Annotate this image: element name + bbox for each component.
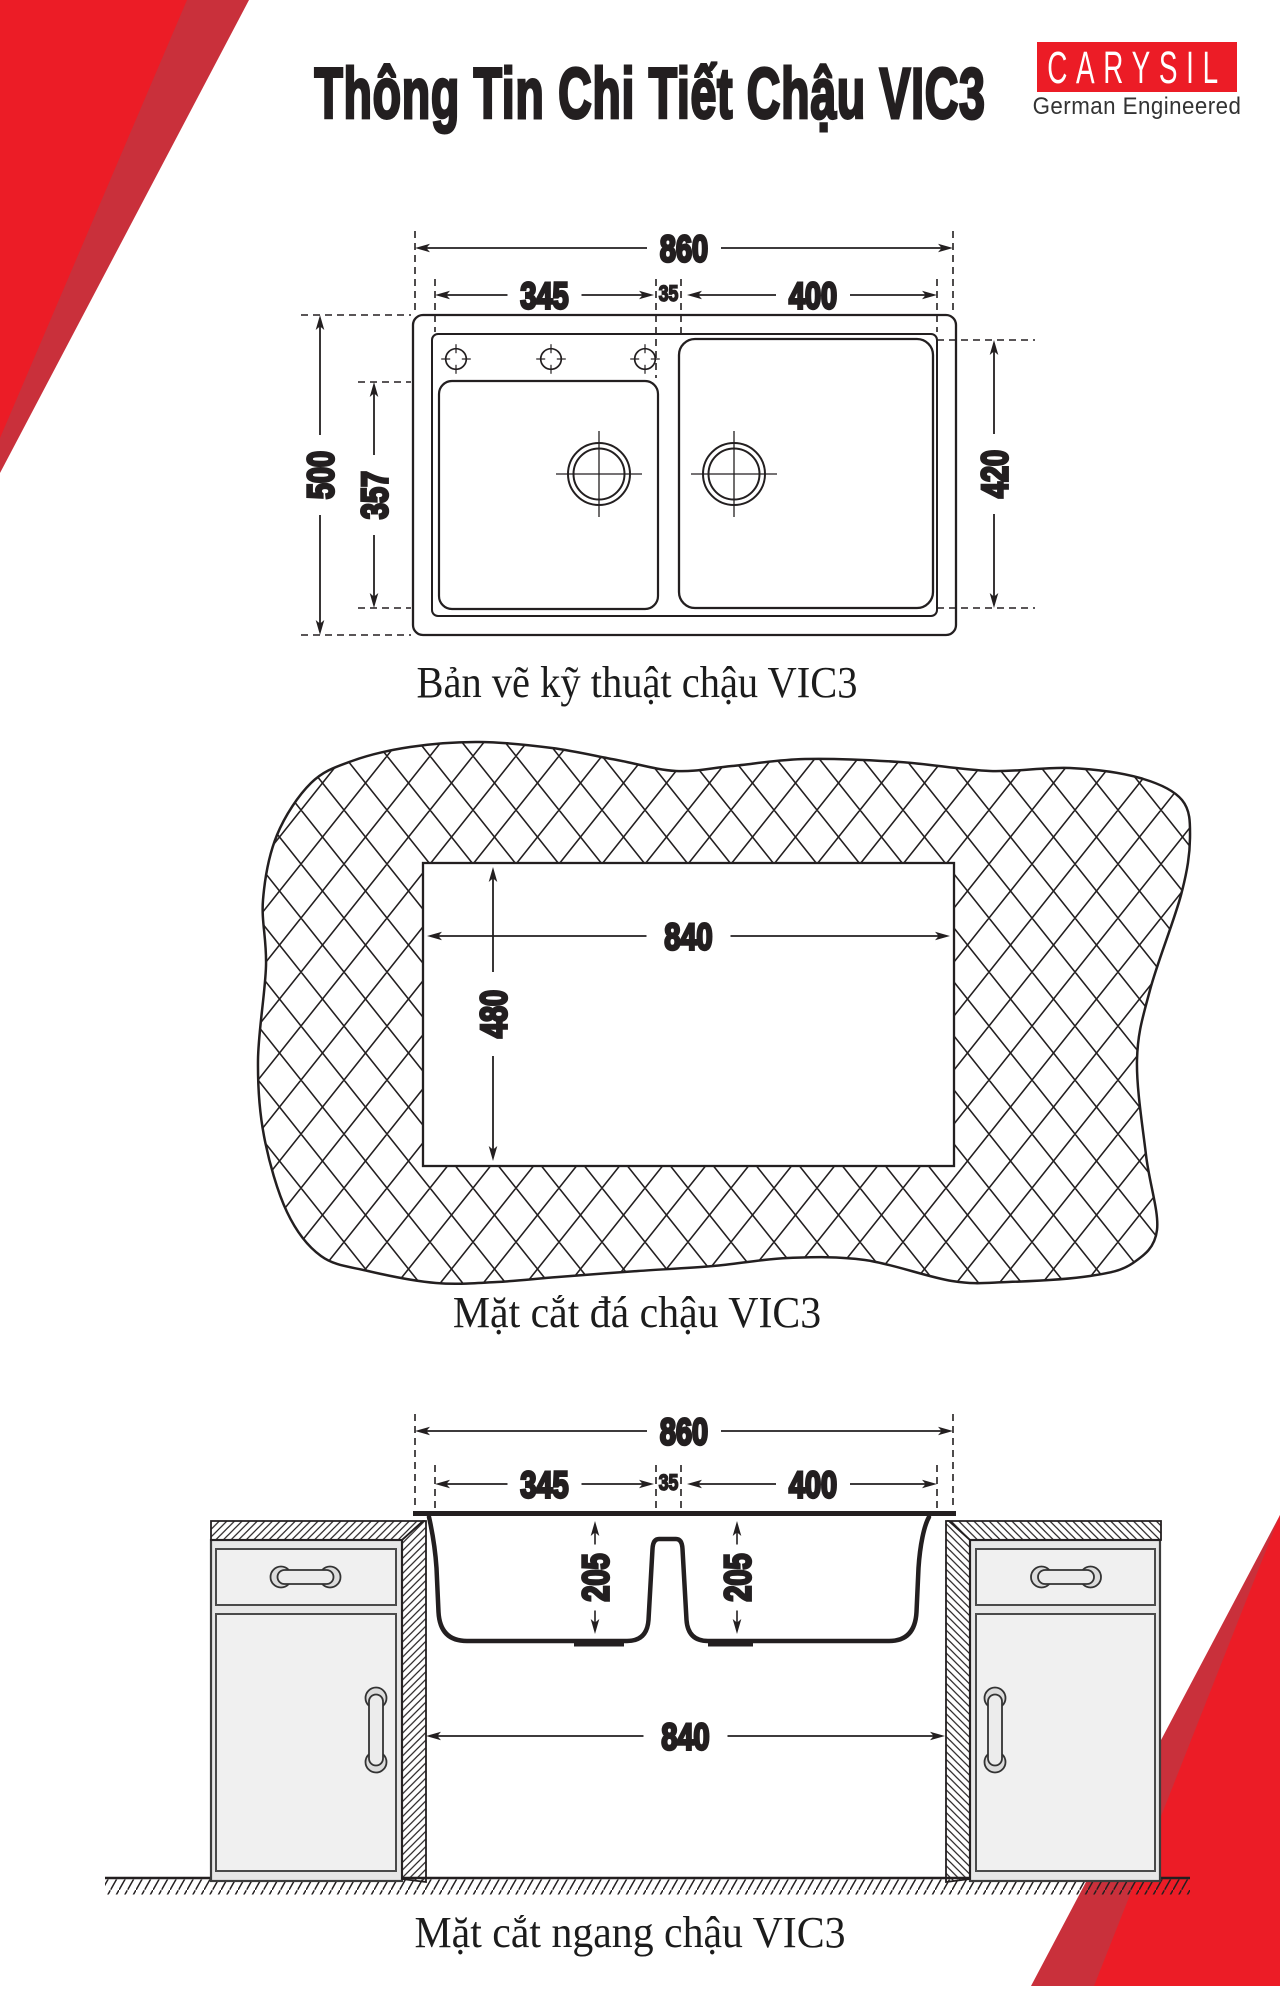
svg-text:400: 400 — [789, 1465, 837, 1506]
svg-text:CARYSIL: CARYSIL — [1047, 42, 1227, 92]
svg-text:Thông Tin Chi Tiết Chậu VIC3: Thông Tin Chi Tiết Chậu VIC3 — [314, 54, 985, 133]
svg-text:Bản vẽ kỹ thuật chậu VIC3: Bản vẽ kỹ thuật chậu VIC3 — [417, 658, 858, 707]
svg-text:345: 345 — [520, 1465, 568, 1506]
svg-text:480: 480 — [474, 990, 515, 1038]
svg-text:400: 400 — [789, 276, 837, 317]
svg-text:840: 840 — [664, 917, 712, 958]
svg-text:500: 500 — [301, 451, 342, 499]
svg-text:35: 35 — [659, 282, 679, 306]
svg-text:German Engineered: German Engineered — [1033, 92, 1242, 119]
svg-text:205: 205 — [718, 1553, 759, 1601]
svg-text:Mặt cắt ngang chậu VIC3: Mặt cắt ngang chậu VIC3 — [415, 1909, 846, 1957]
svg-text:205: 205 — [576, 1553, 617, 1601]
svg-text:420: 420 — [975, 450, 1016, 498]
svg-text:Mặt cắt đá chậu VIC3: Mặt cắt đá chậu VIC3 — [453, 1289, 821, 1337]
svg-text:860: 860 — [660, 229, 708, 270]
svg-text:35: 35 — [659, 1471, 679, 1495]
svg-text:860: 860 — [660, 1412, 708, 1453]
svg-text:345: 345 — [520, 276, 568, 317]
svg-text:840: 840 — [661, 1717, 709, 1758]
svg-text:357: 357 — [355, 471, 396, 519]
